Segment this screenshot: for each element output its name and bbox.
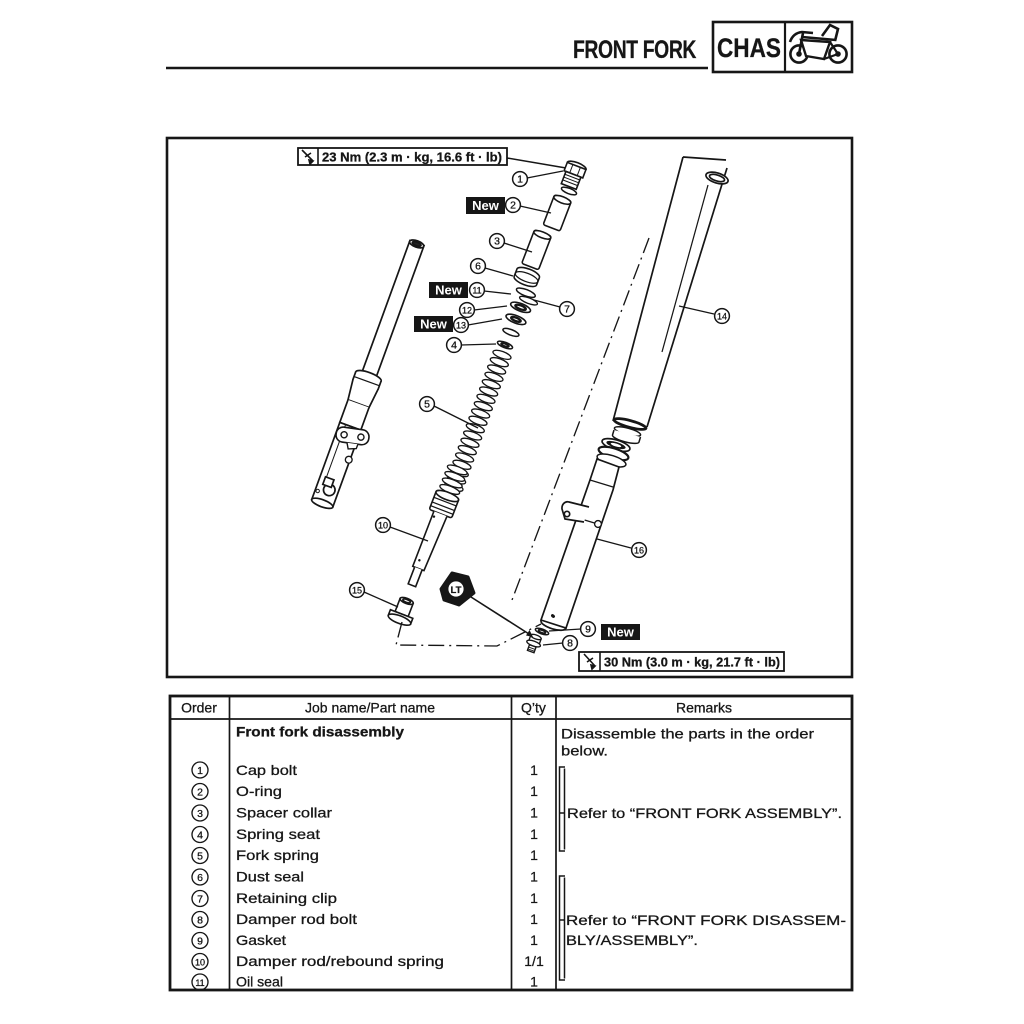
svg-text:O-ring: O-ring <box>236 783 282 799</box>
svg-text:Damper rod bolt: Damper rod bolt <box>236 911 357 927</box>
svg-text:1: 1 <box>530 805 538 821</box>
svg-text:4: 4 <box>451 340 457 352</box>
svg-text:Fork spring: Fork spring <box>236 847 319 863</box>
svg-text:Gasket: Gasket <box>236 932 286 948</box>
svg-text:15: 15 <box>352 586 362 596</box>
svg-text:below.: below. <box>561 743 608 759</box>
svg-text:Damper rod/rebound spring: Damper rod/rebound spring <box>236 953 444 969</box>
svg-text:7: 7 <box>564 304 570 316</box>
svg-text:1: 1 <box>530 847 538 863</box>
svg-text:BLY/ASSEMBLY”.: BLY/ASSEMBLY”. <box>566 932 698 948</box>
svg-text:Spring seat: Spring seat <box>236 826 320 842</box>
svg-text:7: 7 <box>197 893 203 905</box>
svg-text:10: 10 <box>195 957 205 967</box>
svg-text:Front fork disassembly: Front fork disassembly <box>236 724 404 740</box>
svg-text:Dust seal: Dust seal <box>236 869 304 885</box>
svg-text:2: 2 <box>197 786 203 798</box>
svg-text:12: 12 <box>462 306 472 316</box>
svg-text:Remarks: Remarks <box>676 700 732 716</box>
svg-text:FRONT FORK: FRONT FORK <box>573 36 696 64</box>
svg-text:1/1: 1/1 <box>524 953 544 969</box>
svg-text:Q’ty: Q’ty <box>521 700 546 716</box>
svg-text:11: 11 <box>472 286 481 296</box>
svg-text:New: New <box>472 198 500 213</box>
svg-text:Disassemble the parts in the o: Disassemble the parts in the order <box>561 726 814 742</box>
svg-text:New: New <box>607 625 635 640</box>
svg-text:11: 11 <box>195 978 204 988</box>
svg-text:Refer to “FRONT FORK ASSEMBLY”: Refer to “FRONT FORK ASSEMBLY”. <box>567 805 842 821</box>
svg-text:4: 4 <box>197 829 203 841</box>
svg-text:New: New <box>435 283 463 298</box>
svg-text:Cap bolt: Cap bolt <box>236 762 297 778</box>
svg-text:New: New <box>420 317 448 332</box>
svg-text:16: 16 <box>634 546 644 556</box>
svg-text:1: 1 <box>530 826 538 842</box>
svg-text:1: 1 <box>530 932 538 948</box>
svg-text:10: 10 <box>378 521 388 531</box>
svg-text:2: 2 <box>510 200 516 212</box>
svg-text:8: 8 <box>567 638 573 650</box>
svg-text:9: 9 <box>585 624 591 636</box>
svg-text:23 Nm (2.3 m · kg, 16.6 ft · l: 23 Nm (2.3 m · kg, 16.6 ft · lb) <box>322 151 502 165</box>
svg-text:LT: LT <box>451 585 462 596</box>
svg-text:30 Nm (3.0 m · kg, 21.7 ft · l: 30 Nm (3.0 m · kg, 21.7 ft · lb) <box>604 656 780 670</box>
svg-text:1: 1 <box>197 765 203 777</box>
svg-text:1: 1 <box>530 890 538 906</box>
svg-text:3: 3 <box>197 808 203 820</box>
svg-text:Job name/Part name: Job name/Part name <box>305 700 435 716</box>
svg-text:6: 6 <box>197 872 203 884</box>
svg-text:Spacer collar: Spacer collar <box>236 805 332 821</box>
svg-text:1: 1 <box>530 869 538 885</box>
svg-text:Oil seal: Oil seal <box>236 974 283 990</box>
svg-text:13: 13 <box>456 321 466 331</box>
svg-text:1: 1 <box>530 911 538 927</box>
svg-text:3: 3 <box>494 236 500 248</box>
svg-text:8: 8 <box>197 914 203 926</box>
svg-text:Retaining clip: Retaining clip <box>236 890 337 906</box>
svg-text:6: 6 <box>475 261 481 273</box>
svg-text:1: 1 <box>530 762 538 778</box>
svg-text:9: 9 <box>197 935 203 947</box>
svg-text:1: 1 <box>517 174 523 186</box>
svg-text:CHAS: CHAS <box>717 33 781 63</box>
svg-text:Order: Order <box>181 700 217 716</box>
svg-text:1: 1 <box>530 974 538 990</box>
svg-text:1: 1 <box>530 783 538 799</box>
svg-text:5: 5 <box>424 399 430 411</box>
svg-text:5: 5 <box>197 850 203 862</box>
svg-text:Refer to “FRONT FORK DISASSEM-: Refer to “FRONT FORK DISASSEM- <box>566 912 846 928</box>
svg-text:14: 14 <box>717 312 727 322</box>
